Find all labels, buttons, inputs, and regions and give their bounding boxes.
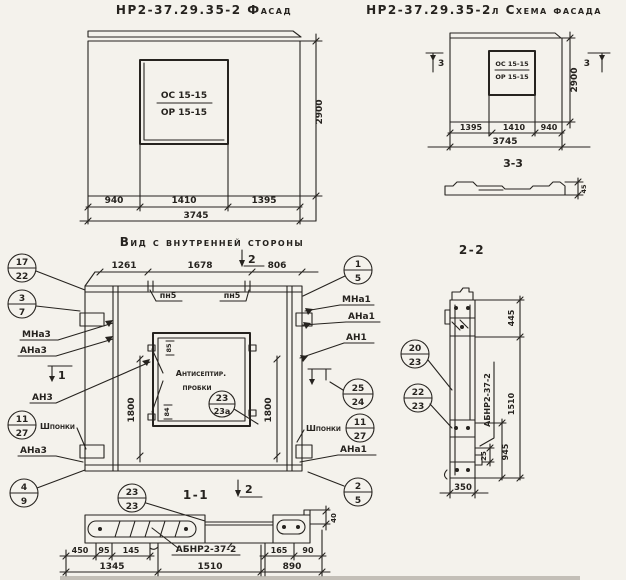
window-mark-bottom: ОР 15-15 (161, 108, 207, 118)
marker-2-label: 2 (248, 253, 256, 266)
callout-bottom: 24 (352, 398, 365, 408)
rebar-hook (150, 543, 158, 549)
blueprint-scan: НР2-37.29.35-2 Фасад ОС 15-15 ОР 15-15 9… (0, 0, 626, 580)
label-shponki-left: Шпонки (40, 422, 75, 431)
section-marker-1-left: 1 (48, 366, 72, 382)
rebar-dot (282, 525, 286, 529)
callout-22-23: 22 23 (404, 384, 452, 428)
callout-top: 17 (16, 258, 29, 268)
dim-line-1800-right (274, 356, 280, 462)
callout-top: 3 (19, 294, 25, 304)
dim-85: 85 (165, 343, 173, 353)
dim-40: 40 (330, 513, 338, 523)
dim-806: 806 (268, 261, 287, 271)
window-mark-bottom: ОР 15-15 (495, 73, 529, 81)
callout-top: 4 (21, 483, 27, 493)
dim-945: 945 (501, 443, 510, 460)
dim-445: 445 (507, 309, 516, 326)
callout-bottom: 23а (214, 407, 231, 416)
dim-1395: 1395 (251, 196, 276, 206)
mna1-leader (305, 305, 374, 311)
callout-top: 11 (16, 415, 29, 425)
callout-top: 25 (352, 384, 365, 394)
window-opening (140, 60, 228, 144)
callout-25-24: 25 24 (330, 379, 373, 409)
section-marker-3-right: 3 (584, 53, 610, 72)
ana1-leader (303, 322, 380, 325)
rebar-dot (454, 426, 458, 430)
label-mna1: МНа1 (342, 295, 371, 305)
callout-top: 1 (355, 260, 361, 270)
section-2-2-view: 2-2 АБНР2-37-2 20 23 22 23 (401, 243, 524, 498)
dim-450: 450 (72, 546, 89, 555)
label-ana3-top: АНа3 (20, 346, 47, 356)
dim-1410: 1410 (171, 196, 196, 206)
callout-bottom: 5 (355, 274, 361, 284)
ana3-bottom-leader (18, 456, 83, 462)
dim-3745: 3745 (492, 137, 517, 147)
sill-joint (450, 420, 475, 437)
dim-1678: 1678 (187, 261, 212, 271)
label-ana1-bottom: АНа1 (340, 445, 367, 455)
dim-350: 350 (454, 483, 472, 493)
label-mna3: МНа3 (22, 330, 51, 340)
window-mark-top: ОС 15-15 (495, 60, 529, 68)
facade-scheme-title: НР2-37.29.35-2л Схема фасада (366, 3, 602, 17)
callout-top: 2 (355, 482, 361, 492)
dim-940: 940 (105, 196, 124, 206)
callout-bottom: 23 (409, 358, 422, 368)
pn5-label-right: пн5 (224, 291, 241, 300)
dim-1800-right: 1800 (264, 397, 274, 422)
marker-2-label: 2 (245, 483, 253, 496)
pn5-label-left: пн5 (160, 291, 177, 300)
dim-890: 890 (283, 562, 302, 572)
section-2-2-title: 2-2 (459, 243, 485, 257)
label-shponki-right: Шпонки (306, 424, 341, 433)
dim-1410: 1410 (503, 123, 526, 132)
callout-3-7: 3 7 (8, 290, 80, 318)
rebar-dot (460, 325, 464, 329)
item-label: АБНР2-37-2 (483, 373, 492, 427)
dim-1510: 1510 (197, 562, 222, 572)
dim-1261: 1261 (111, 261, 136, 271)
facade-scheme-view: НР2-37.29.35-2л Схема фасада ОС 15-15 ОР… (366, 3, 610, 199)
panel-outline (88, 41, 300, 196)
dim-3745: 3745 (183, 211, 208, 221)
rebar-zone-right (277, 520, 305, 534)
section-marker-2-bottom: 2 (235, 480, 262, 497)
callout-17-22: 17 22 (8, 254, 85, 290)
dim-165: 165 (271, 546, 288, 555)
callout-bottom: 27 (354, 432, 367, 442)
callout-top: 20 (409, 344, 422, 354)
rebar-dot (454, 306, 458, 310)
callout-20-23: 20 23 (401, 340, 452, 390)
label-an3: АН3 (32, 393, 53, 403)
callout-bottom: 27 (16, 429, 29, 439)
note-line-2: пробки (182, 383, 211, 392)
label-ana3-bottom: АНа3 (20, 446, 47, 456)
rebar-dot (455, 468, 459, 472)
callout-bottom: 7 (19, 308, 25, 318)
section-marker-1-right (308, 369, 331, 385)
dim-90: 90 (302, 546, 314, 555)
panel-top-strip (450, 33, 561, 38)
label-an1: АН1 (346, 333, 367, 343)
section-marker-2-top: 2 (239, 250, 264, 267)
dim-1395: 1395 (460, 123, 483, 132)
facade-left-view: НР2-37.29.35-2 Фасад ОС 15-15 ОР 15-15 9… (80, 3, 325, 224)
label-ana1-top: АНа1 (348, 312, 375, 322)
callout-1-5: 1 5 (303, 256, 372, 296)
arrowhead (300, 355, 308, 362)
dim-84: 84 (163, 407, 171, 417)
panel-top-strip (88, 31, 301, 37)
dim-2900: 2900 (570, 67, 580, 92)
window-mark-top: ОС 15-15 (161, 91, 207, 101)
section-3-3-title: 3-3 (503, 157, 523, 170)
section-1-1-title: 1-1 (183, 488, 209, 502)
rebar-dot (466, 426, 470, 430)
profile-dim: 45 (580, 184, 588, 194)
panel-ribs (85, 286, 302, 471)
rebar-dot (98, 527, 102, 531)
rebar-dot (466, 306, 470, 310)
inner-side-view: Вид с внутренней стороны 1261 1678 806 2… (8, 235, 380, 507)
scan-edge-artifact (60, 576, 580, 580)
rebar-dot (184, 527, 188, 531)
dim-line-top (85, 269, 318, 286)
marker-1-label: 1 (58, 369, 66, 382)
callout-2-5: 2 5 (308, 472, 372, 506)
callout-bottom: 9 (21, 497, 27, 507)
marker-3-label: 3 (438, 59, 444, 69)
callout-4-9: 4 9 (10, 470, 85, 507)
section-1-1-view: 23 23 1-1 2 АБНР2-37-2 40 450 95 145 165 (60, 480, 338, 576)
facade-left-title: НР2-37.29.35-2 Фасад (116, 3, 292, 17)
callout-top: 11 (354, 418, 367, 428)
callout-bottom: 22 (16, 272, 29, 282)
dim-2900: 2900 (315, 99, 325, 124)
window-frame-inner (144, 63, 224, 140)
note-line-1: Антисептир. (176, 369, 226, 378)
marker-3-label: 3 (584, 59, 590, 69)
dim-1345: 1345 (99, 562, 124, 572)
item-label: АБНР2-37-2 (176, 545, 236, 555)
dim-1510: 1510 (507, 392, 516, 415)
section-3-3-profile (445, 182, 565, 195)
callout-bottom: 23 (412, 402, 425, 412)
dim-line-height (313, 34, 319, 221)
dim-1800-left: 1800 (127, 397, 137, 422)
rebar-dot (296, 525, 300, 529)
panel-drawing-sheet: НР2-37.29.35-2 Фасад ОС 15-15 ОР 15-15 9… (0, 0, 626, 580)
rebar-dot (466, 468, 470, 472)
dim-line-1800-left (137, 356, 143, 462)
callout-bottom: 5 (355, 496, 361, 506)
rebar-hatch-left (115, 521, 180, 537)
dim-95: 95 (98, 546, 110, 555)
section-marker-3-left: 3 (426, 53, 444, 72)
dim-940: 940 (541, 123, 558, 132)
dim-145: 145 (123, 546, 140, 555)
lip-dim-lines (310, 506, 330, 530)
callout-top: 22 (412, 388, 425, 398)
callout-top: 23 (216, 394, 229, 404)
inner-view-title: Вид с внутренней стороны (120, 235, 304, 249)
callout-top: 23 (126, 488, 139, 498)
dim-25: 25 (480, 451, 488, 461)
an1-leader (300, 343, 374, 358)
callout-bottom: 23 (126, 502, 139, 512)
